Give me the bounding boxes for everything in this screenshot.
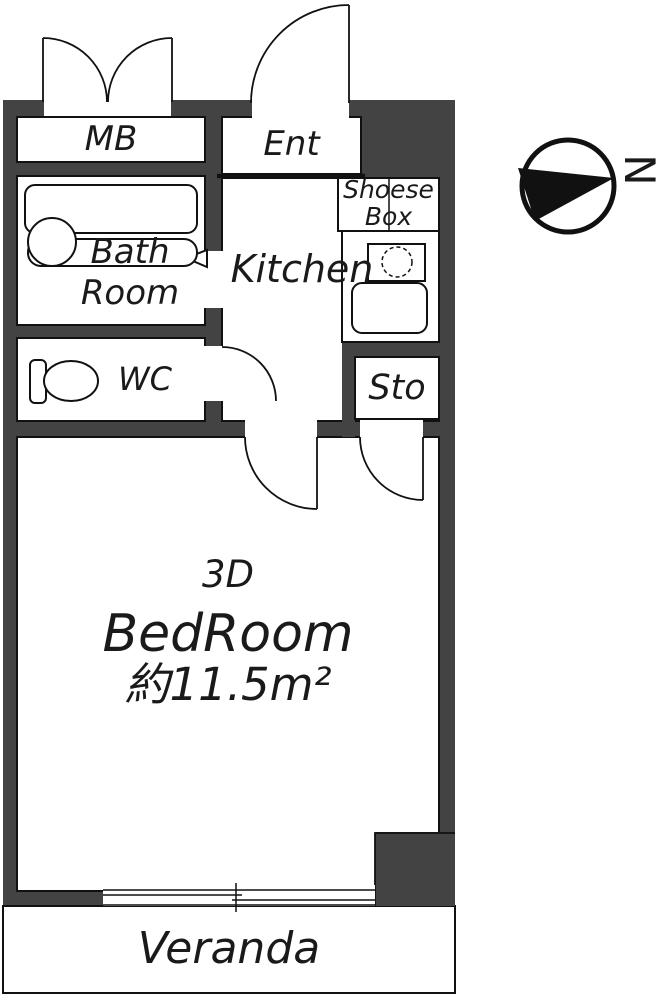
room-veranda — [3, 906, 455, 993]
mb-double-door-icon — [43, 38, 172, 102]
toilet-icon — [30, 360, 98, 403]
wall-left — [3, 100, 17, 906]
ent-door-icon — [251, 5, 349, 103]
room-bedroom — [17, 437, 439, 891]
wall-bedroom-notch — [375, 832, 455, 906]
wall-mb-bath-divider — [17, 162, 207, 176]
kitchen-bedroom-door-opening — [245, 420, 317, 439]
room-sto — [355, 357, 439, 419]
floor-plan-drawing — [0, 0, 662, 1000]
compass-icon — [518, 140, 614, 232]
wall-right — [439, 100, 455, 906]
room-mb — [17, 117, 205, 162]
sto-bedroom-door-opening — [360, 420, 423, 439]
room-ent — [222, 117, 361, 174]
wall-bedroom-bottom-left — [3, 891, 107, 906]
ent-door-opening — [252, 98, 349, 119]
sink-icon — [352, 283, 427, 333]
wall-sto-left — [342, 342, 355, 437]
bathtub-icon — [25, 185, 197, 266]
wc-door-opening — [204, 346, 224, 401]
washbasin-icon — [28, 218, 76, 266]
floor-plan: MB Ent Shoese Box Kitchen Sto Bath Room … — [0, 0, 662, 1000]
wall-sto-top — [342, 342, 455, 357]
wall-bath-wc-divider — [17, 325, 207, 338]
kitchen-counter-icon — [342, 231, 439, 342]
shoes-box-icon — [338, 178, 439, 231]
